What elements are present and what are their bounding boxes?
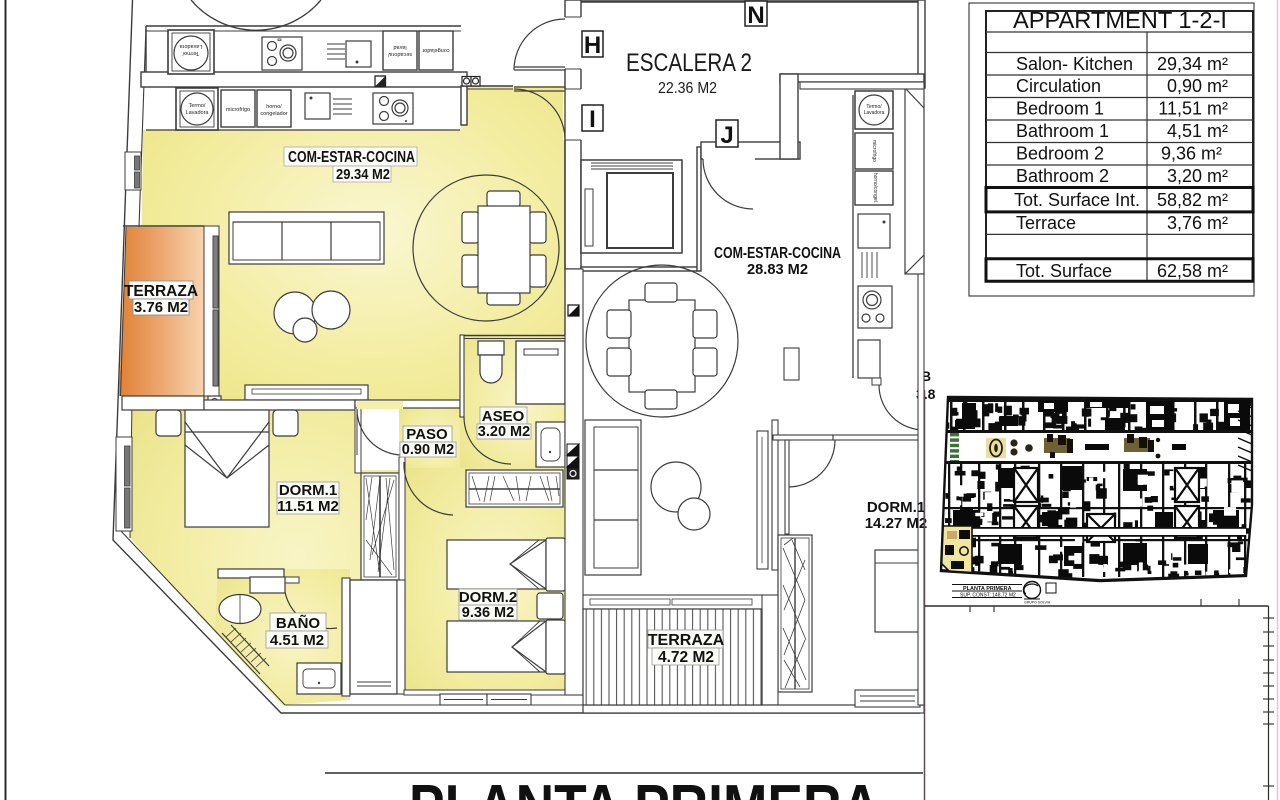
svg-text:14.27 M2: 14.27 M2	[865, 515, 928, 532]
svg-text:congelador: congelador	[422, 47, 449, 53]
svg-text:4.72 M2: 4.72 M2	[658, 649, 714, 666]
svg-text:PLANTA PRIMERA: PLANTA PRIMERA	[409, 773, 880, 800]
svg-text:22.36 M2: 22.36 M2	[658, 80, 717, 97]
svg-text:DORM.1: DORM.1	[867, 499, 925, 516]
svg-text:62,58 m²: 62,58 m²	[1157, 261, 1228, 281]
svg-text:APPARTMENT 1-2-I: APPARTMENT 1-2-I	[1013, 7, 1227, 33]
svg-text:Lavadora: Lavadora	[186, 110, 210, 116]
svg-text:ASEO: ASEO	[482, 408, 525, 425]
svg-text:lavad: lavad	[393, 44, 406, 50]
svg-text:4.51 M2: 4.51 M2	[270, 632, 324, 649]
svg-text:Bathroom 2: Bathroom 2	[1016, 166, 1109, 186]
svg-text:0,90 m²: 0,90 m²	[1167, 76, 1228, 96]
svg-text:Salon- Kitchen: Salon- Kitchen	[1016, 54, 1133, 74]
svg-text:Tot. Surface Int.: Tot. Surface Int.	[1014, 190, 1140, 210]
svg-text:58,82 m²: 58,82 m²	[1157, 190, 1228, 210]
svg-text:Lavadora: Lavadora	[179, 43, 203, 49]
svg-text:0.90 M2: 0.90 M2	[402, 442, 454, 458]
svg-text:29.34 M2: 29.34 M2	[336, 166, 390, 183]
svg-text:29,34 m²: 29,34 m²	[1157, 54, 1228, 74]
svg-text:Lavadora: Lavadora	[864, 110, 885, 116]
svg-text:N: N	[747, 2, 764, 29]
svg-text:horno/: horno/	[266, 104, 282, 110]
svg-text:BAÑO: BAÑO	[276, 614, 320, 632]
svg-text:ESCALERA 2: ESCALERA 2	[626, 49, 752, 77]
svg-text:Bedroom 2: Bedroom 2	[1016, 144, 1104, 164]
svg-text:COM-ESTAR-COCINA: COM-ESTAR-COCINA	[714, 245, 841, 262]
svg-text:COM-ESTAR-COCINA: COM-ESTAR-COCINA	[288, 149, 415, 166]
svg-text:GRUPO SOLVIA: GRUPO SOLVIA	[1024, 601, 1051, 605]
svg-text:DORM.2: DORM.2	[459, 589, 517, 606]
svg-text:Bathroom 1: Bathroom 1	[1016, 121, 1109, 141]
svg-text:H: H	[584, 32, 601, 59]
svg-text:9.36 M2: 9.36 M2	[462, 605, 514, 621]
svg-text:3,76 m²: 3,76 m²	[1167, 213, 1228, 233]
svg-text:Bedroom 1: Bedroom 1	[1016, 99, 1104, 119]
svg-text:Terrace: Terrace	[1016, 213, 1076, 233]
svg-text:PLANTA PRIMERA: PLANTA PRIMERA	[963, 586, 1012, 592]
svg-text:11.51 M2: 11.51 M2	[277, 498, 339, 515]
svg-text:11,51 m²: 11,51 m²	[1158, 99, 1228, 119]
svg-text:DORM.1: DORM.1	[279, 482, 337, 499]
svg-text:Termo/: Termo/	[182, 50, 199, 56]
svg-text:PASO: PASO	[406, 426, 448, 443]
svg-text:3.20 M2: 3.20 M2	[478, 424, 530, 440]
svg-text:28.83 M2: 28.83 M2	[747, 261, 808, 278]
svg-text:horno/congel.: horno/congel.	[872, 173, 878, 203]
svg-text:3,20 m²: 3,20 m²	[1167, 166, 1228, 186]
svg-text:secadora/: secadora/	[387, 51, 412, 57]
svg-text:congelador: congelador	[260, 111, 287, 117]
svg-text:microfrigo: microfrigo	[226, 107, 250, 113]
svg-text:4,51 m²: 4,51 m²	[1167, 121, 1228, 141]
svg-text:Tot. Surface: Tot. Surface	[1016, 261, 1112, 281]
svg-text:TERRAZA: TERRAZA	[648, 632, 725, 649]
svg-text:microfrigo: microfrigo	[871, 140, 877, 162]
svg-text:Termo/: Termo/	[189, 103, 206, 109]
svg-text:J: J	[720, 122, 733, 149]
svg-text:9,36 m²: 9,36 m²	[1161, 144, 1222, 164]
svg-text:Circulation: Circulation	[1016, 76, 1101, 96]
svg-text:I: I	[589, 106, 596, 133]
svg-text:3.76 M2: 3.76 M2	[134, 299, 188, 316]
svg-text:TERRAZA: TERRAZA	[124, 283, 198, 300]
svg-text:SUP. CONST: 148,72 M2: SUP. CONST: 148,72 M2	[960, 593, 1016, 599]
